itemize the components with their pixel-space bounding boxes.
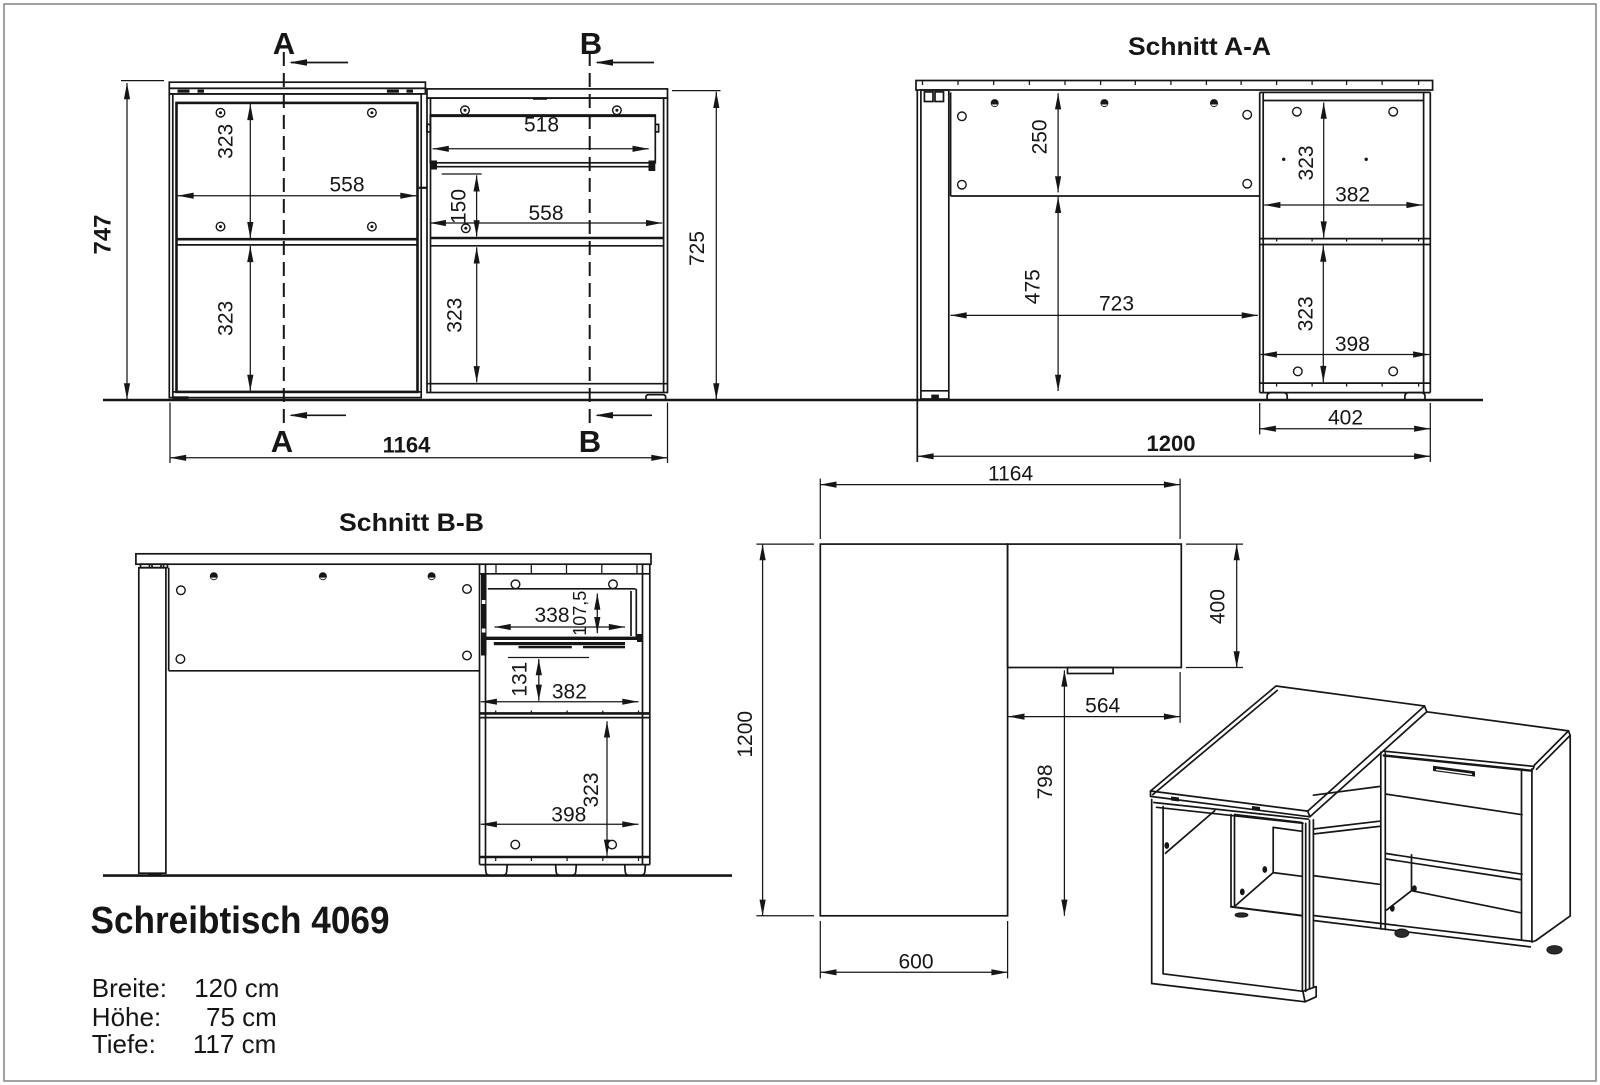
svg-text:382: 382 xyxy=(1335,184,1370,207)
svg-text:600: 600 xyxy=(898,950,933,973)
svg-text:Tiefe:: Tiefe: xyxy=(92,1029,156,1059)
svg-text:Schnitt B-B: Schnitt B-B xyxy=(339,509,484,537)
svg-text:400: 400 xyxy=(1207,589,1230,624)
svg-text:518: 518 xyxy=(524,114,559,137)
svg-text:107,5: 107,5 xyxy=(570,591,590,636)
svg-text:564: 564 xyxy=(1085,695,1120,718)
svg-text:723: 723 xyxy=(1099,293,1134,316)
svg-text:250: 250 xyxy=(1029,119,1052,154)
svg-text:398: 398 xyxy=(551,804,586,827)
svg-text:382: 382 xyxy=(552,681,587,704)
svg-text:1200: 1200 xyxy=(1147,431,1196,456)
svg-text:558: 558 xyxy=(528,202,563,225)
svg-text:475: 475 xyxy=(1021,269,1044,304)
svg-text:558: 558 xyxy=(329,174,364,197)
svg-text:1164: 1164 xyxy=(988,463,1033,486)
svg-text:131: 131 xyxy=(509,662,532,697)
svg-text:1200: 1200 xyxy=(734,711,757,758)
svg-text:323: 323 xyxy=(1295,296,1318,331)
svg-text:B: B xyxy=(579,424,601,459)
svg-text:402: 402 xyxy=(1328,407,1363,430)
svg-text:798: 798 xyxy=(1034,764,1057,799)
svg-text:725: 725 xyxy=(686,231,709,266)
svg-text:117 cm: 117 cm xyxy=(193,1029,276,1059)
svg-text:338: 338 xyxy=(534,604,569,627)
svg-text:Breite:: Breite: xyxy=(92,973,167,1003)
svg-text:B: B xyxy=(580,26,602,61)
svg-text:323: 323 xyxy=(215,124,238,159)
svg-text:150: 150 xyxy=(448,189,471,224)
svg-text:1164: 1164 xyxy=(383,433,431,458)
svg-text:120 cm: 120 cm xyxy=(194,973,279,1003)
svg-text:323: 323 xyxy=(580,772,603,807)
svg-text:323: 323 xyxy=(215,301,238,336)
svg-text:323: 323 xyxy=(1295,145,1318,180)
svg-text:Schnitt A-A: Schnitt A-A xyxy=(1128,33,1271,61)
svg-text:A: A xyxy=(271,424,293,459)
svg-text:747: 747 xyxy=(90,214,117,254)
svg-text:323: 323 xyxy=(443,298,466,333)
svg-text:75 cm: 75 cm xyxy=(206,1002,277,1032)
svg-text:Höhe:: Höhe: xyxy=(92,1002,161,1032)
svg-text:Schreibtisch 4069: Schreibtisch 4069 xyxy=(91,900,390,942)
svg-text:398: 398 xyxy=(1335,333,1370,356)
svg-text:A: A xyxy=(273,26,295,61)
